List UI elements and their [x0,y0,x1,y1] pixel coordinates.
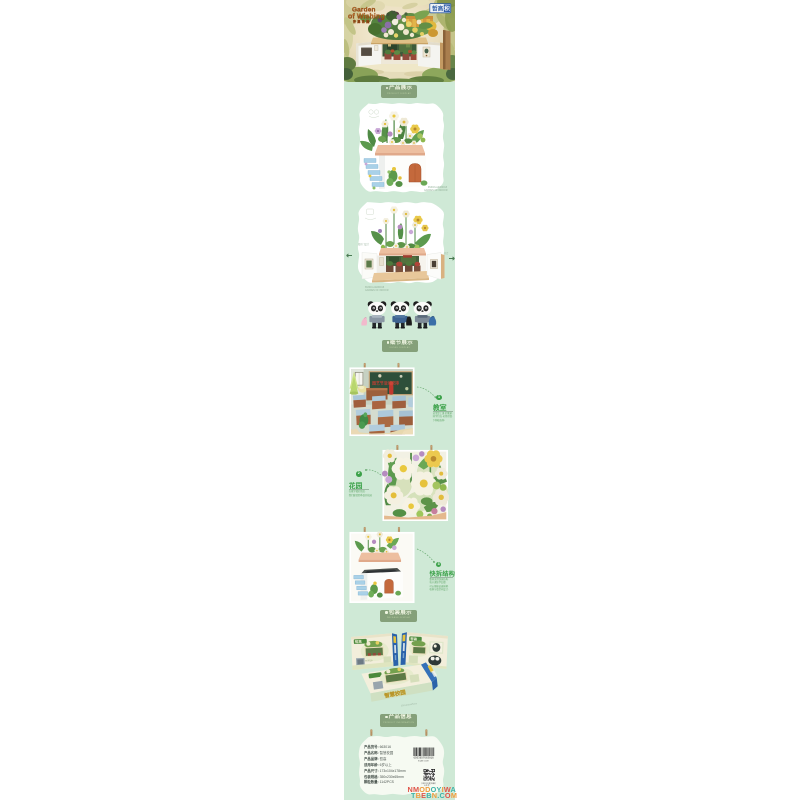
svg-text:663016: 663016 [365,660,373,662]
svg-text:350x230x65mm: 350x230x65mm [401,703,418,707]
svg-text:6953657663016: 6953657663016 [413,756,434,759]
svg-text:哲高: 哲高 [355,639,363,644]
svg-text:Garden: Garden [352,6,376,13]
svg-text:哲高: 哲高 [432,4,444,12]
svg-text:园艺节活动安排: 园艺节活动安排 [372,381,399,386]
svg-text:许愿花园: 许愿花园 [353,19,371,24]
svg-text:哲高: 哲高 [410,636,418,641]
svg-text:SCAN CODE: SCAN CODE [418,759,429,762]
svg-text:积: 积 [444,4,450,12]
